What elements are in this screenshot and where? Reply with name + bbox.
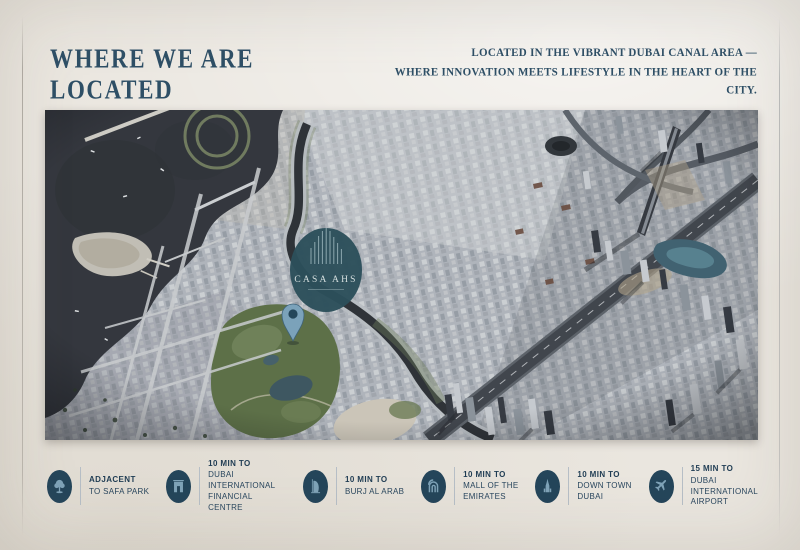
map-logo-title: CASA AHS	[294, 275, 357, 285]
badge-duration: 10 MIN TO	[208, 459, 286, 469]
page-fold-line-left	[22, 16, 23, 536]
burj-khalifa-icon	[541, 478, 554, 495]
project-logo-badge: CASA AHS	[290, 228, 362, 312]
badge-difc: 10 MIN TO DUBAI INTERNATIONAL FINANCIAL …	[166, 459, 286, 514]
map-logo-tagline-line	[308, 289, 344, 290]
badge-divider	[199, 467, 200, 505]
tree-icon	[53, 478, 66, 495]
dubai-aerial-map: CASA AHS	[45, 110, 758, 440]
header: WHERE WE ARE LOCATED LOCATED IN THE VIBR…	[50, 44, 757, 97]
difc-gate-icon	[172, 478, 185, 495]
badge-duration: ADJACENT	[89, 475, 149, 485]
badge-downtown-dubai: 10 MIN TO DOWN TOWN DUBAI	[535, 467, 631, 505]
landmark-badges: ADJACENT TO SAFA PARK 10 MIN TO DUBAI IN…	[47, 459, 758, 514]
badge-destination: DOWN TOWN DUBAI	[577, 481, 631, 503]
header-tagline: LOCATED IN THE VIBRANT DUBAI CANAL AREA …	[374, 44, 757, 101]
burj-al-arab-icon	[309, 478, 322, 495]
badge-safa-park: ADJACENT TO SAFA PARK	[47, 467, 149, 505]
map-panel: CASA AHS	[45, 110, 758, 440]
badge-destination: MALL OF THE EMIRATES	[463, 481, 518, 503]
badge-destination: DUBAI INTERNATIONAL FINANCIAL CENTRE	[208, 470, 286, 513]
airplane-icon	[654, 477, 668, 495]
page-fold-line-right	[779, 16, 780, 536]
page-title: WHERE WE ARE LOCATED	[50, 44, 374, 105]
badge-divider	[568, 467, 569, 505]
badge-duration: 10 MIN TO	[345, 475, 404, 485]
badge-divider	[80, 467, 81, 505]
badge-divider	[454, 467, 455, 505]
badge-duration: 10 MIN TO	[463, 470, 518, 480]
badge-burj-al-arab: 10 MIN TO BURJ AL ARAB	[303, 467, 404, 505]
badge-destination: BURJ AL ARAB	[345, 487, 404, 498]
badge-divider	[336, 467, 337, 505]
badge-dubai-airport: 15 MIN TO DUBAI INTERNATIONAL AIRPORT	[649, 464, 758, 508]
mall-arches-icon	[427, 478, 440, 495]
badge-divider	[682, 467, 683, 505]
badge-duration: 15 MIN TO	[691, 464, 758, 474]
badge-destination: DUBAI INTERNATIONAL AIRPORT	[691, 476, 758, 508]
badge-duration: 10 MIN TO	[577, 470, 631, 480]
badge-destination: TO SAFA PARK	[89, 487, 149, 498]
badge-mall-of-the-emirates: 10 MIN TO MALL OF THE EMIRATES	[421, 467, 518, 505]
